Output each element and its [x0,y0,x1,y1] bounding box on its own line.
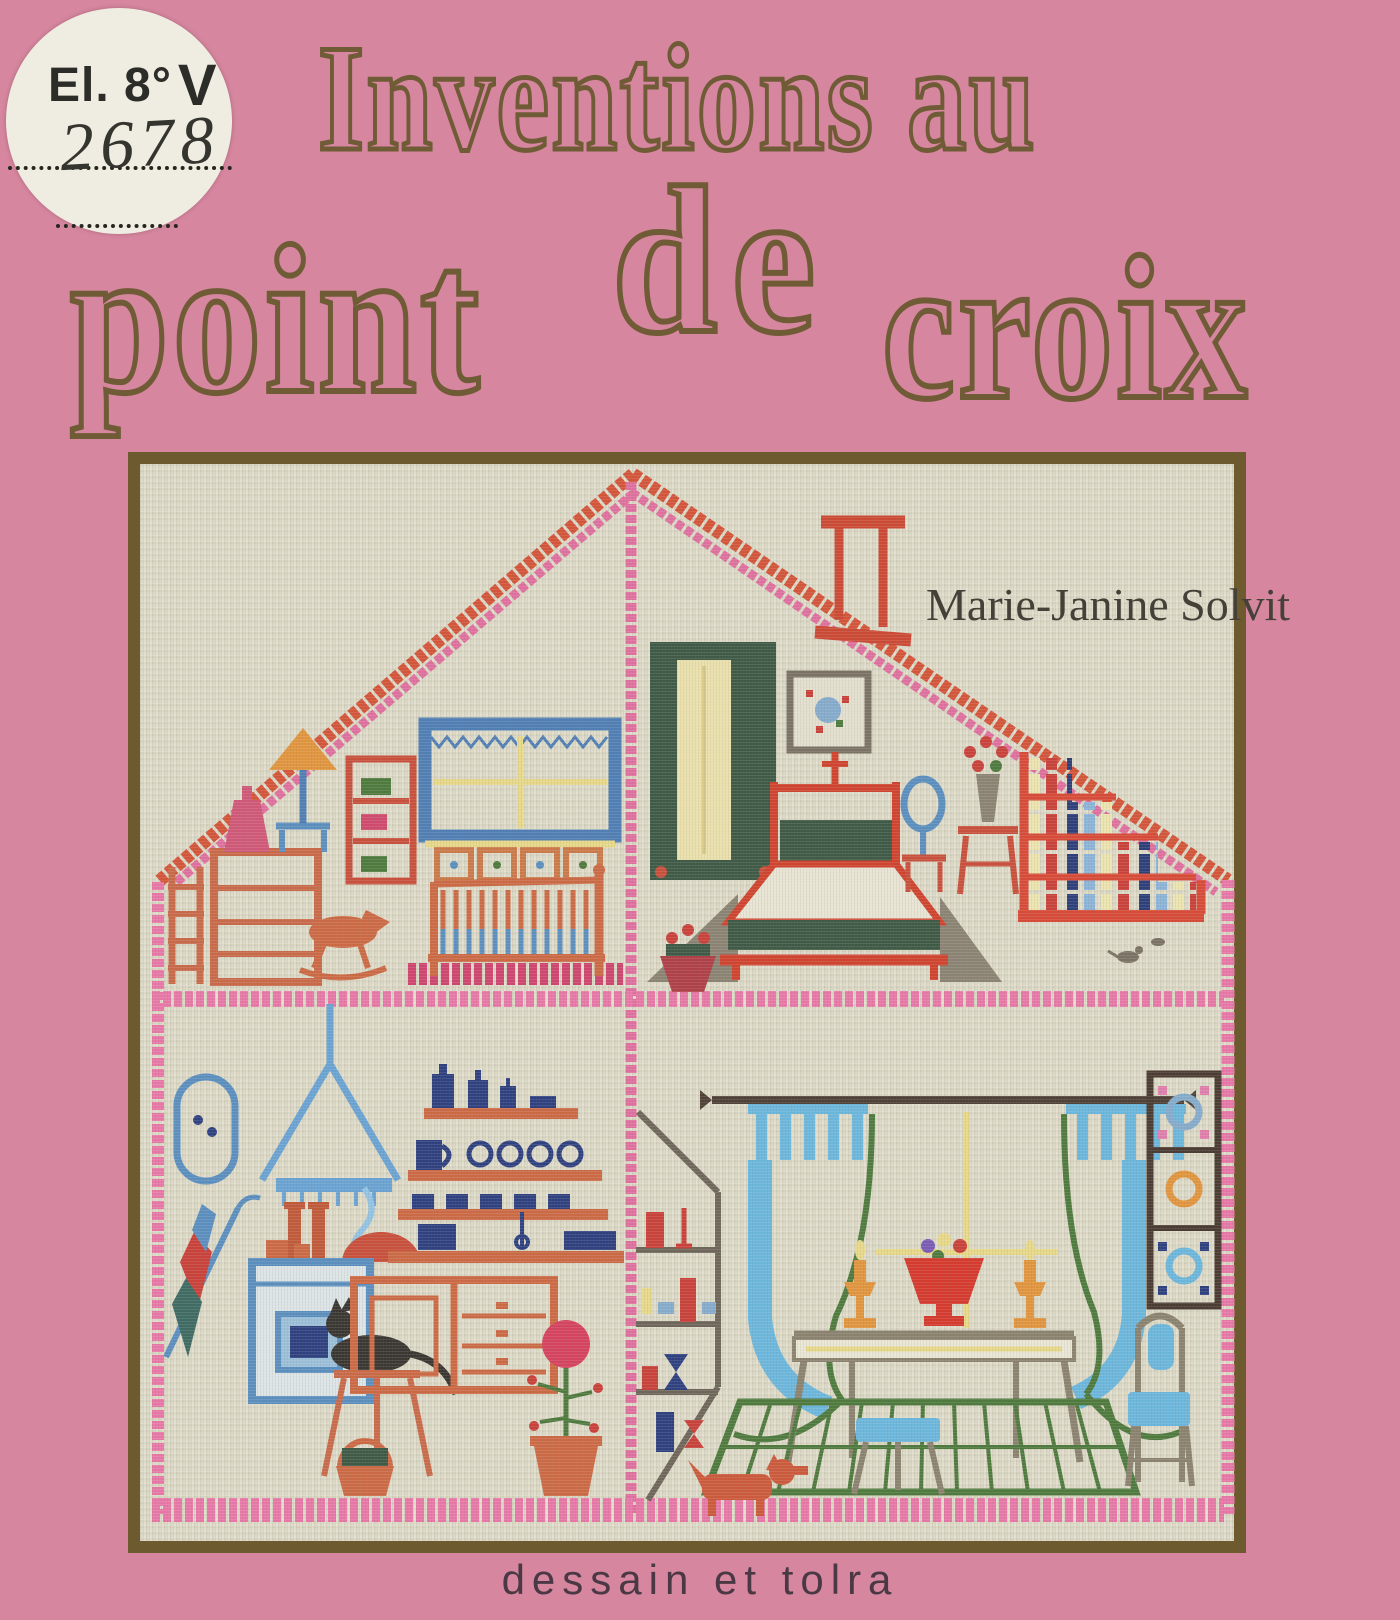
framed-picture-icon [790,674,868,750]
title-word-point: point [70,214,483,426]
basket-icon [336,1441,394,1496]
publisher-name: dessain et tolra [0,1556,1400,1604]
sticker-accession-number: 2678 [58,100,222,187]
book-cover: El. 8°V 2678 Inventions au point de croi… [0,0,1400,1620]
title-word-de: de [612,156,830,366]
door-icon [650,642,776,880]
library-sticker: El. 8°V 2678 [6,8,232,234]
title-word-croix: croix [882,226,1250,431]
author-name: Marie-Janine Solvit [926,578,1290,631]
chair-icon [1128,1316,1192,1486]
